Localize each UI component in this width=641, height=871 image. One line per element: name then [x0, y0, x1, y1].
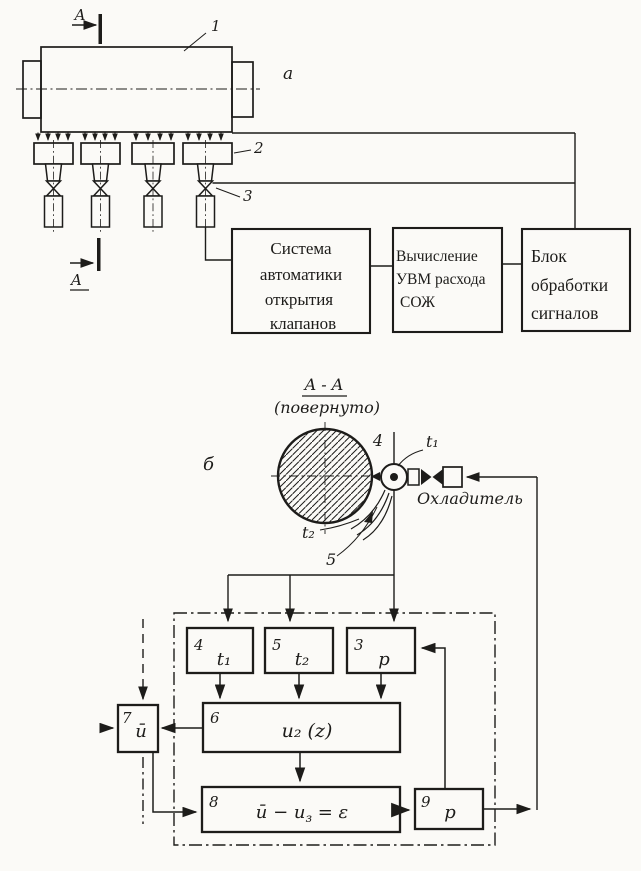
t1-label: t₁: [426, 432, 439, 451]
block-signal-processing-text: сигналов: [531, 303, 598, 323]
block-num: 3: [354, 636, 364, 654]
block-num: 8: [209, 793, 219, 811]
block-num: 7: [122, 709, 132, 727]
block-error-text: ū − uз = ε: [256, 802, 348, 825]
machine-body: [41, 47, 232, 132]
section-b-wheel-view: б A - A (повернуто) 4 t₁ Охладитель: [203, 375, 537, 575]
feed-arrows: [38, 133, 221, 141]
block-valve-automation-text: Система: [270, 239, 332, 258]
block-uvm-computation-text: Вычисление: [396, 248, 478, 265]
coolant-valve-icon: [421, 469, 432, 485]
diagram-canvas: A 1 a: [0, 0, 641, 871]
block-num: 6: [210, 709, 220, 727]
block-num: 4: [193, 636, 204, 654]
block-signal-processing-text: Блок: [531, 246, 567, 266]
view-a-label: a: [283, 64, 293, 84]
callout-machine: 1: [184, 17, 221, 51]
block-num: 5: [272, 636, 282, 654]
callout-nozzle-label: 4: [372, 431, 383, 450]
block-valve-automation-text: клапанов: [270, 314, 336, 333]
block-t1-text: t₁: [217, 649, 231, 670]
block-signal-processing-text: обработки: [531, 275, 608, 295]
section-b-block-diagram: 4 5 3 6 7 8 9 t₁ t₂ p u₂ (z) ū ū − uз = …: [101, 477, 537, 845]
block-t2-text: t₂: [295, 649, 309, 670]
t2-label: t₂: [302, 523, 315, 542]
block-valve-automation-text: открытия: [265, 290, 333, 309]
section-a-flow-blocks: Система автоматики открытия клапанов Выч…: [232, 228, 630, 333]
callout-valve-label: 3: [243, 187, 253, 205]
coolant-valve-icon: [433, 469, 444, 485]
coolant-label: Охладитель: [417, 489, 523, 508]
section-mark-bottom: A: [69, 238, 101, 290]
view-subtitle: (повернуто): [274, 398, 380, 417]
t1-callout: t₁: [398, 432, 439, 466]
section-mark-top: A: [72, 6, 102, 44]
feedback-9-to-3: [422, 648, 445, 789]
block-p2-text: p: [444, 802, 456, 823]
block-valve-automation-text: автоматики: [260, 265, 342, 284]
textbook-diagram-page: A 1 a: [0, 0, 641, 871]
block-p-text: p: [378, 649, 390, 670]
streams-callout-label: 5: [326, 550, 336, 569]
block-uvm-computation-text: СОЖ: [400, 294, 435, 311]
section-mark-bottom-label: A: [69, 271, 82, 289]
manifold-blocks: [34, 143, 232, 164]
block-u-text: ū: [135, 721, 147, 742]
callout-manifold: 2: [234, 139, 264, 157]
manifold-4: [183, 143, 232, 164]
callout-machine-label: 1: [211, 17, 221, 35]
valve-control-line: [206, 227, 232, 260]
block-u2z-text: u₂ (z): [282, 720, 333, 742]
callout-valve: 3: [216, 187, 253, 205]
machine-journal-left: [23, 61, 41, 118]
section-mark-top-label: A: [73, 6, 86, 24]
block-num: 9: [421, 793, 431, 811]
machine-journal-right: [232, 62, 253, 117]
callout-manifold-label: 2: [253, 139, 264, 157]
view-b-label: б: [203, 454, 215, 475]
block-uvm-computation-text: УВМ расхода: [396, 271, 486, 288]
view-title: A - A: [303, 375, 344, 394]
